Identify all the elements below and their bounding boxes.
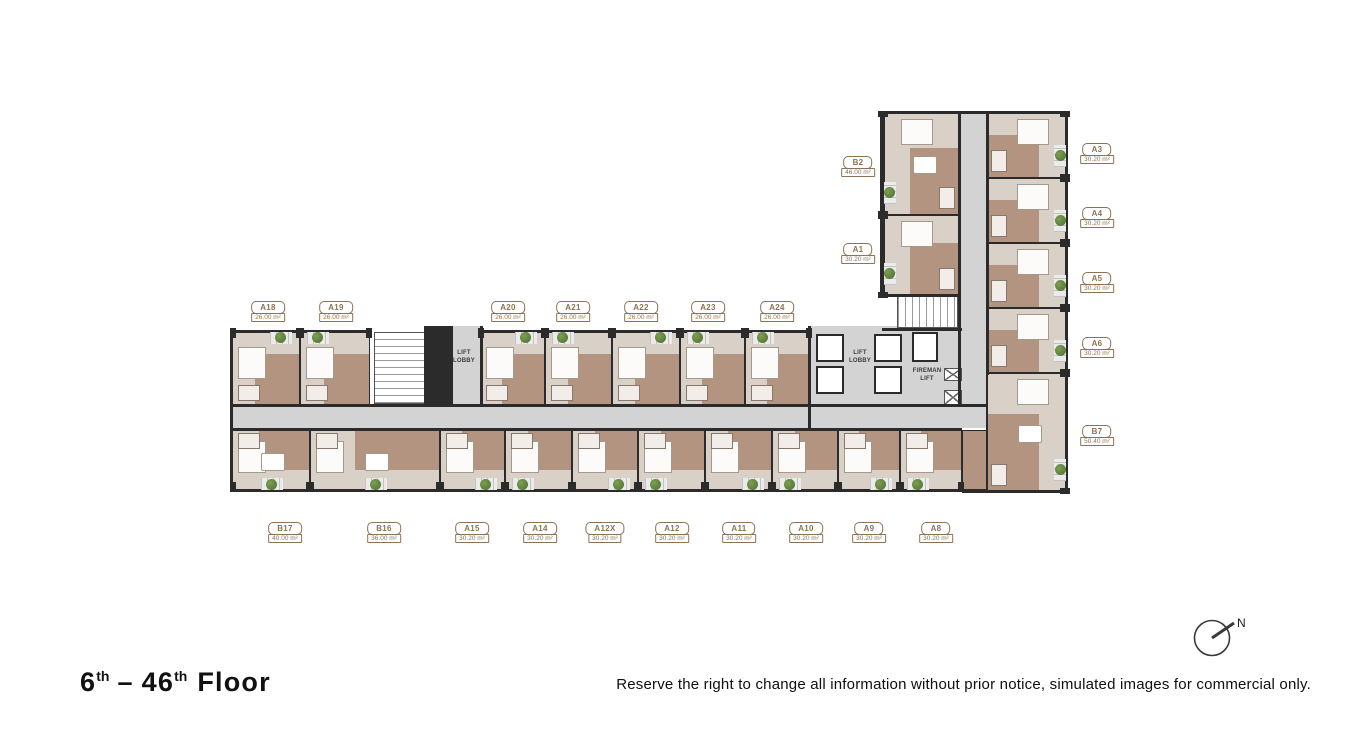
unit-floor-b7 — [986, 373, 1068, 492]
unit-floor-a12 — [638, 428, 705, 492]
wall — [808, 326, 811, 428]
unit-label-a23: A2326.00 m² — [691, 297, 725, 322]
north-compass: N — [1186, 610, 1256, 664]
facade-column — [636, 482, 642, 492]
unit-area: 30.20 m² — [919, 534, 953, 543]
unit-label-a12x: A12X30.20 m² — [585, 518, 624, 543]
facade-column — [230, 482, 236, 492]
facade-column — [610, 328, 616, 338]
wall — [882, 328, 962, 331]
unit-label-a14: A1430.20 m² — [523, 518, 557, 543]
bed — [618, 347, 646, 379]
facade-column — [898, 482, 904, 492]
unit-area: 30.20 m² — [655, 534, 689, 543]
dining-table — [261, 453, 285, 471]
unit-label-a1: A130.20 m² — [841, 239, 875, 264]
bathroom — [844, 433, 866, 449]
plant-icon — [1055, 464, 1066, 475]
unit-label-a18: A1826.00 m² — [251, 297, 285, 322]
unit-floor-a11 — [705, 428, 772, 492]
bed — [486, 347, 514, 379]
facade-column — [678, 328, 684, 338]
disclaimer-text: Reserve the right to change all informat… — [616, 676, 1311, 693]
plant-icon — [1055, 280, 1066, 291]
unit-area: 30.20 m² — [1080, 284, 1114, 293]
facade-column — [703, 482, 709, 492]
facade-column — [770, 482, 776, 492]
unit-label-a4: A430.20 m² — [1080, 203, 1114, 228]
facade-column — [1060, 371, 1070, 377]
lift-lobby-east-label: LIFT LOBBY — [844, 350, 876, 365]
wall — [230, 330, 233, 492]
unit-area: 26.00 m² — [251, 313, 285, 322]
unit-label-a20: A2026.00 m² — [491, 297, 525, 322]
unit-area: 26.00 m² — [624, 313, 658, 322]
plant-icon — [1055, 345, 1066, 356]
bathroom — [306, 385, 328, 401]
bed — [1017, 184, 1049, 210]
title-start-number: 6 — [80, 667, 96, 697]
plant-icon — [520, 332, 531, 343]
plant-icon — [875, 479, 886, 490]
bathroom — [939, 187, 955, 209]
unit-floor-a23 — [680, 330, 745, 406]
unit-area: 30.20 m² — [588, 534, 622, 543]
plant-icon — [275, 332, 286, 343]
lift-shaft — [874, 366, 902, 394]
unit-label-a6: A630.20 m² — [1080, 333, 1114, 358]
wall — [962, 490, 1068, 493]
bathroom — [991, 215, 1007, 237]
floor-plan-page: A1826.00 m²A1926.00 m²A2026.00 m²A2126.0… — [0, 0, 1352, 738]
bathroom — [778, 433, 800, 449]
unit-floor-a8 — [900, 428, 962, 492]
unit-name: A21 — [556, 301, 590, 314]
plant-icon — [747, 479, 758, 490]
unit-label-a10: A1030.20 m² — [789, 518, 823, 543]
plant-icon — [1055, 150, 1066, 161]
lift-lobby-west-label: LIFT LOBBY — [448, 350, 480, 365]
unit-name: A12X — [585, 522, 624, 535]
lift-shaft — [816, 366, 844, 394]
unit-name: A15 — [455, 522, 489, 535]
bed — [1017, 119, 1049, 145]
stairwell-wing — [897, 296, 958, 328]
unit-label-a22: A2226.00 m² — [624, 297, 658, 322]
unit-floor-a3 — [986, 113, 1068, 178]
unit-area: 26.00 m² — [691, 313, 725, 322]
unit-floor-a1 — [882, 215, 960, 296]
unit-name: B7 — [1083, 425, 1112, 438]
wall — [882, 294, 960, 297]
facade-column — [543, 328, 549, 338]
bathroom — [991, 280, 1007, 302]
wall — [881, 111, 1068, 114]
unit-name: A6 — [1083, 337, 1112, 350]
plant-icon — [912, 479, 923, 490]
unit-area: 26.00 m² — [760, 313, 794, 322]
unit-label-a15: A1530.20 m² — [455, 518, 489, 543]
unit-label-a12: A1230.20 m² — [655, 518, 689, 543]
facade-column — [1060, 488, 1070, 494]
plant-icon — [557, 332, 568, 343]
unit-label-a9: A930.20 m² — [852, 518, 886, 543]
unit-label-a19: A1926.00 m² — [319, 297, 353, 322]
bathroom — [316, 433, 338, 449]
bathroom — [644, 433, 666, 449]
unit-label-a11: A1130.20 m² — [722, 518, 756, 543]
unit-area: 30.20 m² — [523, 534, 557, 543]
unit-name: A20 — [491, 301, 525, 314]
bathroom — [446, 433, 468, 449]
unit-floor-a12x — [572, 428, 638, 492]
bed — [751, 347, 779, 379]
wall — [958, 113, 961, 406]
facade-column — [1060, 111, 1070, 117]
unit-name: A9 — [855, 522, 884, 535]
bathroom — [686, 385, 708, 401]
dining-table — [913, 156, 937, 174]
facade-column — [806, 328, 812, 338]
unit-name: B17 — [268, 522, 302, 535]
title-start-ordinal: th — [96, 668, 109, 684]
plant-icon — [757, 332, 768, 343]
unit-floor-b7-annex — [962, 430, 988, 490]
facade-column — [878, 111, 888, 117]
bed — [901, 119, 933, 145]
unit-area: 36.00 m² — [367, 534, 401, 543]
bathroom — [991, 345, 1007, 367]
facade-column — [878, 292, 888, 298]
plant-icon — [370, 479, 381, 490]
unit-name: A10 — [789, 522, 823, 535]
plant-icon — [1055, 215, 1066, 226]
title-suffix: Floor — [197, 667, 271, 697]
facade-column — [438, 482, 444, 492]
facade-column — [478, 328, 484, 338]
unit-floor-a18 — [232, 330, 300, 406]
corridor-vertical — [960, 113, 986, 408]
bathroom — [238, 433, 260, 449]
wall — [880, 113, 883, 296]
unit-area: 50.40 m² — [1080, 437, 1114, 446]
facade-column — [366, 328, 372, 338]
wall — [232, 428, 962, 431]
bathroom — [486, 385, 508, 401]
bed — [901, 221, 933, 247]
unit-area: 26.00 m² — [319, 313, 353, 322]
unit-label-a8: A830.20 m² — [919, 518, 953, 543]
facade-column — [1060, 241, 1070, 247]
unit-area: 30.20 m² — [722, 534, 756, 543]
unit-floor-a4 — [986, 178, 1068, 243]
unit-area: 30.20 m² — [1080, 219, 1114, 228]
unit-label-a5: A530.20 m² — [1080, 268, 1114, 293]
plant-icon — [692, 332, 703, 343]
facade-column — [570, 482, 576, 492]
unit-name: A14 — [523, 522, 557, 535]
title-separator: – — [117, 667, 133, 697]
plant-icon — [884, 268, 895, 279]
plant-icon — [517, 479, 528, 490]
unit-name: A12 — [655, 522, 689, 535]
plant-icon — [884, 187, 895, 198]
bed — [238, 347, 266, 379]
fireman-lift-label: FIREMAN LIFT — [908, 368, 946, 383]
plant-icon — [480, 479, 491, 490]
plant-icon — [312, 332, 323, 343]
bed — [686, 347, 714, 379]
unit-area: 46.00 m² — [841, 168, 875, 177]
unit-name: A4 — [1083, 207, 1112, 220]
unit-area: 30.20 m² — [852, 534, 886, 543]
facade-column — [230, 328, 236, 338]
stairwell-west — [374, 332, 426, 404]
unit-name: A1 — [844, 243, 873, 256]
wall — [232, 404, 988, 407]
unit-area: 30.20 m² — [789, 534, 823, 543]
unit-area: 30.20 m² — [455, 534, 489, 543]
unit-floor-a19 — [300, 330, 370, 406]
lift-lobby-west-area — [450, 326, 480, 406]
compass-north-label: N — [1237, 616, 1246, 630]
unit-name: A8 — [922, 522, 951, 535]
unit-label-b16: B1636.00 m² — [367, 518, 401, 543]
bed — [1017, 314, 1049, 340]
lift-shaft — [874, 334, 902, 362]
lift-shaft — [816, 334, 844, 362]
wall — [480, 326, 483, 406]
unit-name: A23 — [691, 301, 725, 314]
unit-floor-a21 — [545, 330, 612, 406]
unit-label-a3: A330.20 m² — [1080, 139, 1114, 164]
bathroom — [618, 385, 640, 401]
unit-area: 30.20 m² — [841, 255, 875, 264]
unit-name: A24 — [760, 301, 794, 314]
unit-area: 30.20 m² — [1080, 349, 1114, 358]
bed — [1017, 249, 1049, 275]
plant-icon — [613, 479, 624, 490]
unit-floor-a22 — [612, 330, 680, 406]
unit-area: 26.00 m² — [491, 313, 525, 322]
unit-floor-a10 — [772, 428, 838, 492]
plant-icon — [655, 332, 666, 343]
bathroom — [939, 268, 955, 290]
unit-name: A11 — [722, 522, 755, 535]
plant-icon — [266, 479, 277, 490]
bathroom — [711, 433, 733, 449]
bathroom — [578, 433, 600, 449]
unit-floor-a5 — [986, 243, 1068, 308]
unit-name: A18 — [251, 301, 285, 314]
facade-column — [958, 482, 964, 492]
unit-name: A5 — [1083, 272, 1112, 285]
unit-name: A3 — [1083, 143, 1112, 156]
unit-label-b17: B1740.00 m² — [268, 518, 302, 543]
title-end-ordinal: th — [174, 668, 187, 684]
bathroom — [551, 385, 573, 401]
plant-icon — [650, 479, 661, 490]
bathroom — [906, 433, 928, 449]
wall — [986, 113, 989, 375]
unit-label-b7: B750.40 m² — [1080, 421, 1114, 446]
facade-column — [1060, 306, 1070, 312]
unit-floor-a15 — [440, 428, 505, 492]
facade-column — [1060, 176, 1070, 182]
unit-label-b2: B246.00 m² — [841, 152, 875, 177]
unit-floor-a14 — [505, 428, 572, 492]
bed — [551, 347, 579, 379]
facade-column — [743, 328, 749, 338]
bathroom — [511, 433, 533, 449]
bathroom — [991, 464, 1007, 486]
unit-area: 30.20 m² — [1080, 155, 1114, 164]
facade-column — [503, 482, 509, 492]
facade-column — [308, 482, 314, 492]
unit-floor-a20 — [480, 330, 545, 406]
unit-floor-b17 — [232, 428, 310, 492]
bathroom — [751, 385, 773, 401]
unit-floor-a9 — [838, 428, 900, 492]
bathroom — [991, 150, 1007, 172]
unit-floor-b2 — [882, 113, 960, 215]
plant-icon — [784, 479, 795, 490]
unit-floor-a24 — [745, 330, 810, 406]
unit-name: B16 — [367, 522, 401, 535]
page-title: 6th–46thFloor — [80, 667, 271, 698]
unit-area: 26.00 m² — [556, 313, 590, 322]
unit-name: B2 — [844, 156, 873, 169]
bathroom — [238, 385, 260, 401]
facade-column — [836, 482, 842, 492]
unit-floor-a6 — [986, 308, 1068, 373]
facade-column — [298, 328, 304, 338]
unit-label-a21: A2126.00 m² — [556, 297, 590, 322]
unit-name: A22 — [624, 301, 658, 314]
floor-plan: A1826.00 m²A1926.00 m²A2026.00 m²A2126.0… — [0, 0, 1352, 738]
title-end-number: 46 — [142, 667, 174, 697]
bed — [306, 347, 334, 379]
unit-name: A19 — [319, 301, 353, 314]
dining-table — [365, 453, 389, 471]
dining-table — [1018, 425, 1042, 443]
unit-area: 40.00 m² — [268, 534, 302, 543]
lift-core-west — [426, 326, 453, 406]
unit-floor-b16 — [310, 428, 440, 492]
facade-column — [878, 213, 888, 219]
fireman-lift-shaft — [912, 332, 938, 362]
bed — [1017, 379, 1049, 405]
unit-label-a24: A2426.00 m² — [760, 297, 794, 322]
